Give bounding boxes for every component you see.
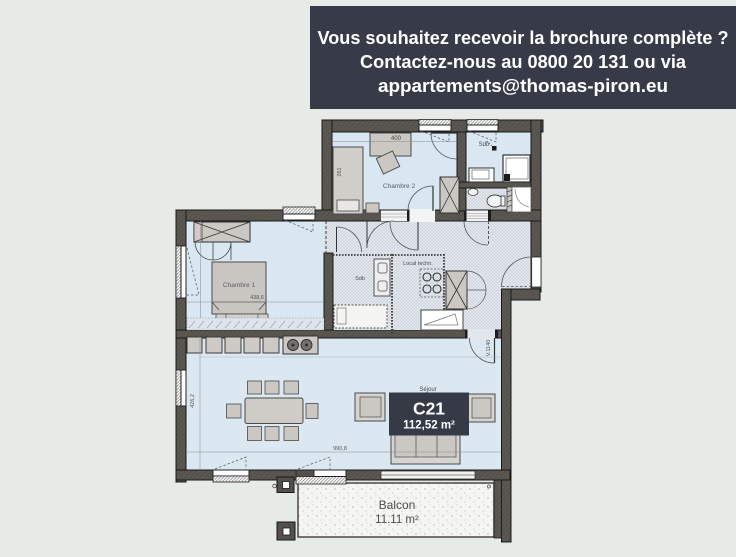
svg-text:Chambre 1: Chambre 1 [223,282,256,289]
svg-text:426,2: 426,2 [190,394,196,408]
svg-text:Sdb: Sdb [479,142,490,148]
svg-text:Contactez-nous au 0800 20 131: Contactez-nous au 0800 20 131 ou via [360,52,687,72]
svg-text:Vous souhaitez recevoir la bro: Vous souhaitez recevoir la brochure comp… [318,28,729,48]
svg-text:112,52 m²: 112,52 m² [403,420,455,432]
svg-text:11.11 m²: 11.11 m² [375,514,419,526]
svg-text:Séjour: Séjour [419,387,436,393]
svg-text:Balcon: Balcon [379,498,416,512]
svg-text:C21: C21 [413,399,445,419]
svg-text:990,8: 990,8 [333,446,347,452]
svg-text:Sdb: Sdb [355,276,365,282]
svg-text:V.1140: V.1140 [486,340,492,357]
svg-text:261: 261 [337,167,343,176]
svg-text:Local techn.: Local techn. [403,261,433,267]
svg-text:Chambre 2: Chambre 2 [383,183,416,190]
svg-text:appartements@thomas-piron.eu: appartements@thomas-piron.eu [378,76,668,96]
svg-text:438,6: 438,6 [250,295,264,301]
svg-text:400: 400 [391,136,402,142]
